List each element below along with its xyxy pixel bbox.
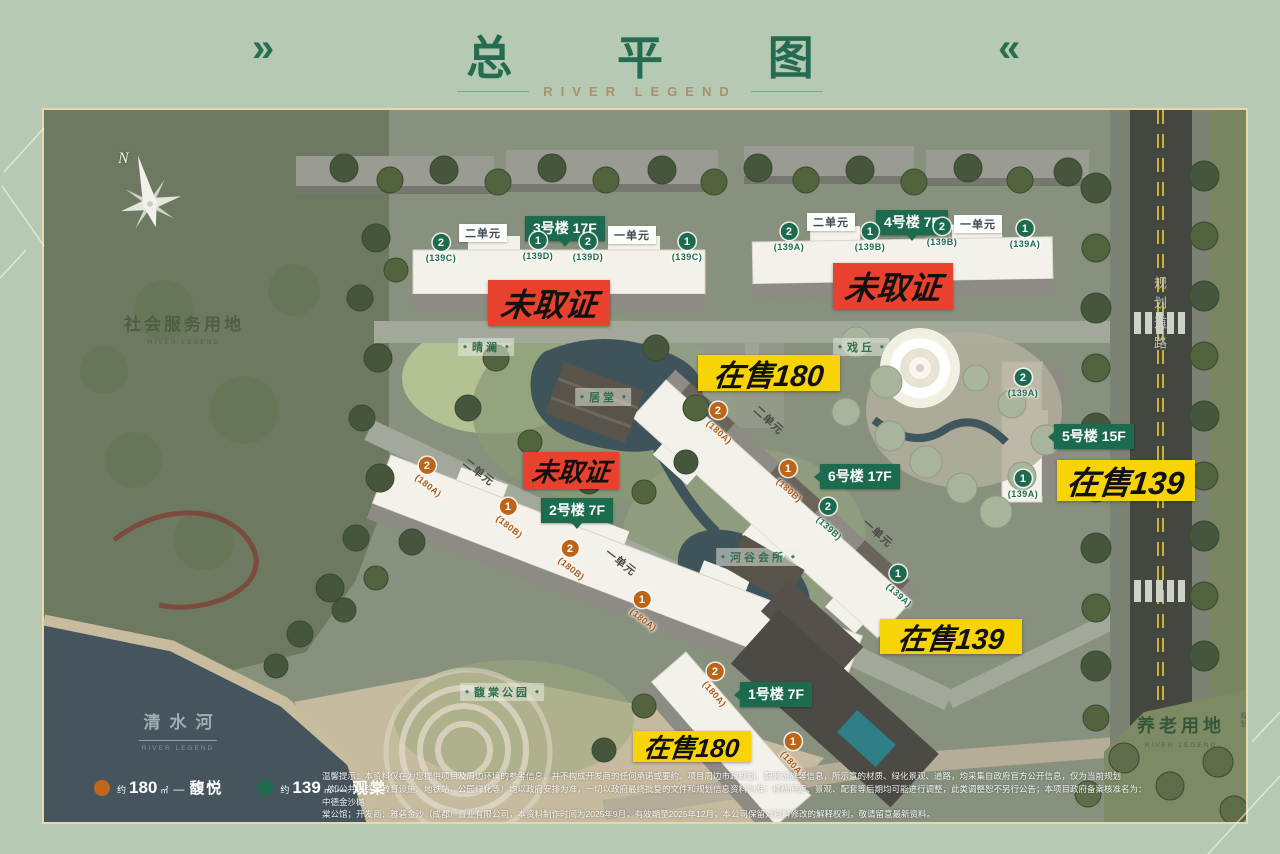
diamond-icon: ◆	[465, 689, 469, 695]
zone-name: 清水河	[135, 708, 222, 733]
page-title: 总 平 图	[0, 22, 1280, 88]
unit-marker: 1 (139C)	[672, 233, 703, 262]
unit-number: 2	[819, 498, 836, 515]
legend-dash: —	[337, 784, 348, 796]
compass-north-label: N	[118, 150, 129, 168]
status-text: 在售139	[1065, 458, 1187, 504]
diamond-icon: ◆	[838, 344, 842, 350]
zone-name: 社会服务用地	[124, 310, 244, 335]
unit-tag: 一单元	[954, 215, 1002, 233]
building-badge-1: 1号楼 7F	[740, 682, 812, 707]
unit-plan-label: (139A)	[774, 242, 805, 252]
unit-number: 1	[633, 591, 650, 608]
pointer-left-icon	[734, 689, 741, 701]
status-text: 未取证	[499, 280, 600, 326]
disclaimer-line: 温馨提示：本资料仅在为您提供项目及周边环境的参考信息，并不构成开发商的任何承诺或…	[322, 770, 1152, 783]
building-badge-6: 6号楼 17F	[820, 464, 900, 489]
legend-area: 139	[292, 778, 320, 798]
unit-marker: 1 (180A)	[778, 733, 809, 762]
chevron-left-icon: «	[998, 26, 1020, 71]
unit-number: 1	[779, 460, 796, 477]
subtitle-text: RIVER LEGEND	[543, 84, 737, 99]
badge-text: 5号楼 15F	[1062, 428, 1126, 444]
unit-plan-label: (139D)	[573, 252, 604, 262]
status-label-on-sale-180: 在售180	[698, 355, 840, 391]
disclaimer: 温馨提示：本资料仅在为您提供项目及周边环境的参考信息，并不构成开发商的任何承诺或…	[322, 770, 1152, 821]
unit-plan-label: (139C)	[672, 252, 703, 262]
amenity-name: 晴澜	[472, 339, 500, 355]
diamond-icon: ◆	[791, 554, 795, 560]
unit-number: 2	[579, 233, 596, 250]
badge-text: 6号楼 17F	[828, 468, 892, 484]
legend-approx: 约	[117, 783, 126, 796]
unit-marker: 1 (139D)	[523, 232, 554, 261]
amenity-name: 居堂	[589, 389, 617, 405]
unit-tag: 二单元	[807, 213, 855, 231]
unit-marker: 2 (139B)	[927, 218, 958, 247]
legend-unit: ㎡	[324, 785, 332, 796]
legend-item-139: 约 139 ㎡ — 观棠	[257, 777, 386, 798]
status-label-no-permit: 未取证	[833, 263, 953, 309]
amenity-label-jutang: ◆ 居堂 ◆	[575, 388, 631, 406]
legend-item-180: 约 180 ㎡ — 馥悦	[94, 777, 223, 798]
unit-number: 1	[1016, 220, 1033, 237]
unit-marker: 2 (139D)	[573, 233, 604, 262]
unit-number: 1	[678, 233, 695, 250]
unit-number: 1	[784, 733, 801, 750]
disclaimer-line: （如公共道路、教育设施、地铁站、公园绿化等）均以政府安排为准，一切以政府最终批复…	[322, 783, 1152, 809]
unit-plan-label: (139A)	[1008, 388, 1039, 398]
unit-marker: 2 (139B)	[813, 498, 844, 527]
unit-plan-label: (139A)	[1008, 489, 1039, 499]
unit-number: 2	[933, 218, 950, 235]
legend-name: 观棠	[353, 777, 387, 798]
status-label-no-permit: 未取证	[523, 452, 619, 489]
diamond-icon: ◆	[721, 554, 725, 560]
status-label-on-sale-139: 在售139	[1057, 460, 1195, 501]
legend-dash: —	[173, 784, 184, 796]
pointer-left-icon	[814, 471, 821, 483]
unit-number: 1	[1014, 470, 1031, 487]
unit-marker: 2 (180A)	[703, 402, 734, 431]
amenity-label-futang-park: ◆ 馥棠公园 ◆	[460, 683, 544, 701]
pointer-down-icon	[571, 522, 583, 529]
unit-marker: 2 (180A)	[412, 457, 443, 486]
diamond-icon: ◆	[535, 689, 539, 695]
amenity-name: 馥棠公园	[474, 684, 530, 700]
unit-marker: 1 (180B)	[773, 460, 804, 489]
amenity-name: 戏丘	[847, 339, 875, 355]
unit-marker: 2 (139A)	[1008, 369, 1039, 398]
divider-line	[139, 740, 217, 741]
legend-unit: ㎡	[160, 785, 168, 796]
unit-marker: 2 (139A)	[774, 223, 805, 252]
diamond-icon: ◆	[463, 344, 467, 350]
status-label-on-sale-139: 在售139	[880, 619, 1022, 654]
diamond-icon: ◆	[880, 344, 884, 350]
amenity-name: 河谷会所	[730, 549, 786, 565]
zone-label-elder-care: 养老用地 规划 RIVER LEGEND	[1106, 712, 1246, 749]
unit-marker: 1 (139A)	[1008, 470, 1039, 499]
unit-number: 2	[561, 540, 578, 557]
page-subtitle: RIVER LEGEND	[0, 84, 1280, 99]
zone-name: 养老用地	[1137, 712, 1225, 738]
badge-text: 1号楼 7F	[748, 686, 804, 702]
unit-marker: 2 (139C)	[426, 234, 457, 263]
zone-subtitle: RIVER LEGEND	[1145, 742, 1217, 749]
zone-subtitle: RIVER LEGEND	[148, 339, 220, 346]
zone-label-qingshui-river: 清水河 RIVER LEGEND	[108, 708, 248, 752]
unit-marker: 1 (139B)	[855, 223, 886, 252]
amenity-label-xiqiu: ◆ 戏丘 ◆	[833, 338, 889, 356]
unit-number: 2	[706, 663, 723, 680]
unit-plan-label: (139B)	[927, 237, 958, 247]
unit-number: 2	[1014, 369, 1031, 386]
unit-plan-label: (139B)	[855, 242, 886, 252]
unit-number: 1	[889, 565, 906, 582]
unit-marker: 2 (180A)	[700, 663, 731, 692]
pointer-down-icon	[906, 234, 918, 241]
unit-number: 2	[432, 234, 449, 251]
pointer-left-icon	[1048, 431, 1055, 443]
unit-number: 1	[861, 223, 878, 240]
amenity-label-qinglan: ◆ 晴澜 ◆	[458, 338, 514, 356]
status-text: 未取证	[843, 263, 944, 309]
status-text: 在售180	[712, 351, 827, 395]
zone-note: 规划	[1238, 712, 1246, 728]
building-badge-2: 2号楼 7F	[541, 498, 613, 523]
building-badge-5: 5号楼 15F	[1054, 424, 1134, 449]
unit-number: 2	[418, 457, 435, 474]
legend: 约 180 ㎡ — 馥悦 约 139 ㎡ — 观棠	[94, 777, 387, 798]
diamond-icon: ◆	[622, 394, 626, 400]
legend-dot-orange	[94, 780, 110, 796]
diamond-icon: ◆	[580, 394, 584, 400]
unit-marker: 2 (180B)	[555, 540, 586, 569]
pointer-down-icon	[559, 240, 571, 247]
site-plan-poster: » 总 平 图 « RIVER LEGEND	[0, 0, 1280, 854]
unit-number: 1	[529, 232, 546, 249]
unit-tag: 一单元	[608, 226, 656, 244]
unit-plan-label: (139D)	[523, 251, 554, 261]
unit-marker: 1 (180B)	[493, 498, 524, 527]
unit-marker: 1 (139A)	[883, 565, 914, 594]
zone-label-social-services: 社会服务用地 RIVER LEGEND	[114, 310, 254, 346]
status-label-on-sale-180: 在售180	[633, 731, 751, 762]
amenity-label-valley-club: ◆ 河谷会所 ◆	[716, 548, 800, 566]
unit-number: 2	[780, 223, 797, 240]
badge-text: 2号楼 7F	[549, 502, 605, 518]
disclaimer-line: 棠公馆；开发商：雅砻金沙（成都）置业有限公司，本资料制作时间为2025年9月，有…	[322, 808, 1152, 821]
unit-number: 2	[709, 402, 726, 419]
master-plan-map: N 社会服务用地 RIVER LEGEND 清水河 RIVER LEGEND 养…	[44, 110, 1246, 822]
status-text: 在售139	[896, 616, 1007, 658]
status-text: 未取证	[530, 452, 612, 489]
unit-plan-label: (139A)	[1010, 239, 1041, 249]
legend-approx: 约	[280, 783, 289, 796]
subtitle-line	[457, 91, 529, 92]
status-label-no-permit: 未取证	[488, 280, 610, 326]
unit-plan-label: (139C)	[426, 253, 457, 263]
legend-area: 180	[129, 778, 157, 798]
legend-name: 馥悦	[189, 777, 223, 798]
unit-marker: 1 (180A)	[627, 591, 658, 620]
subtitle-line	[751, 91, 823, 92]
zone-label-planned-road: 规划道路	[1150, 276, 1169, 356]
unit-tag: 二单元	[459, 224, 507, 242]
legend-dot-green	[257, 780, 273, 796]
zone-subtitle: RIVER LEGEND	[142, 745, 214, 752]
unit-number: 1	[499, 498, 516, 515]
unit-marker: 1 (139A)	[1010, 220, 1041, 249]
diamond-icon: ◆	[505, 344, 509, 350]
status-text: 在售180	[642, 728, 741, 765]
